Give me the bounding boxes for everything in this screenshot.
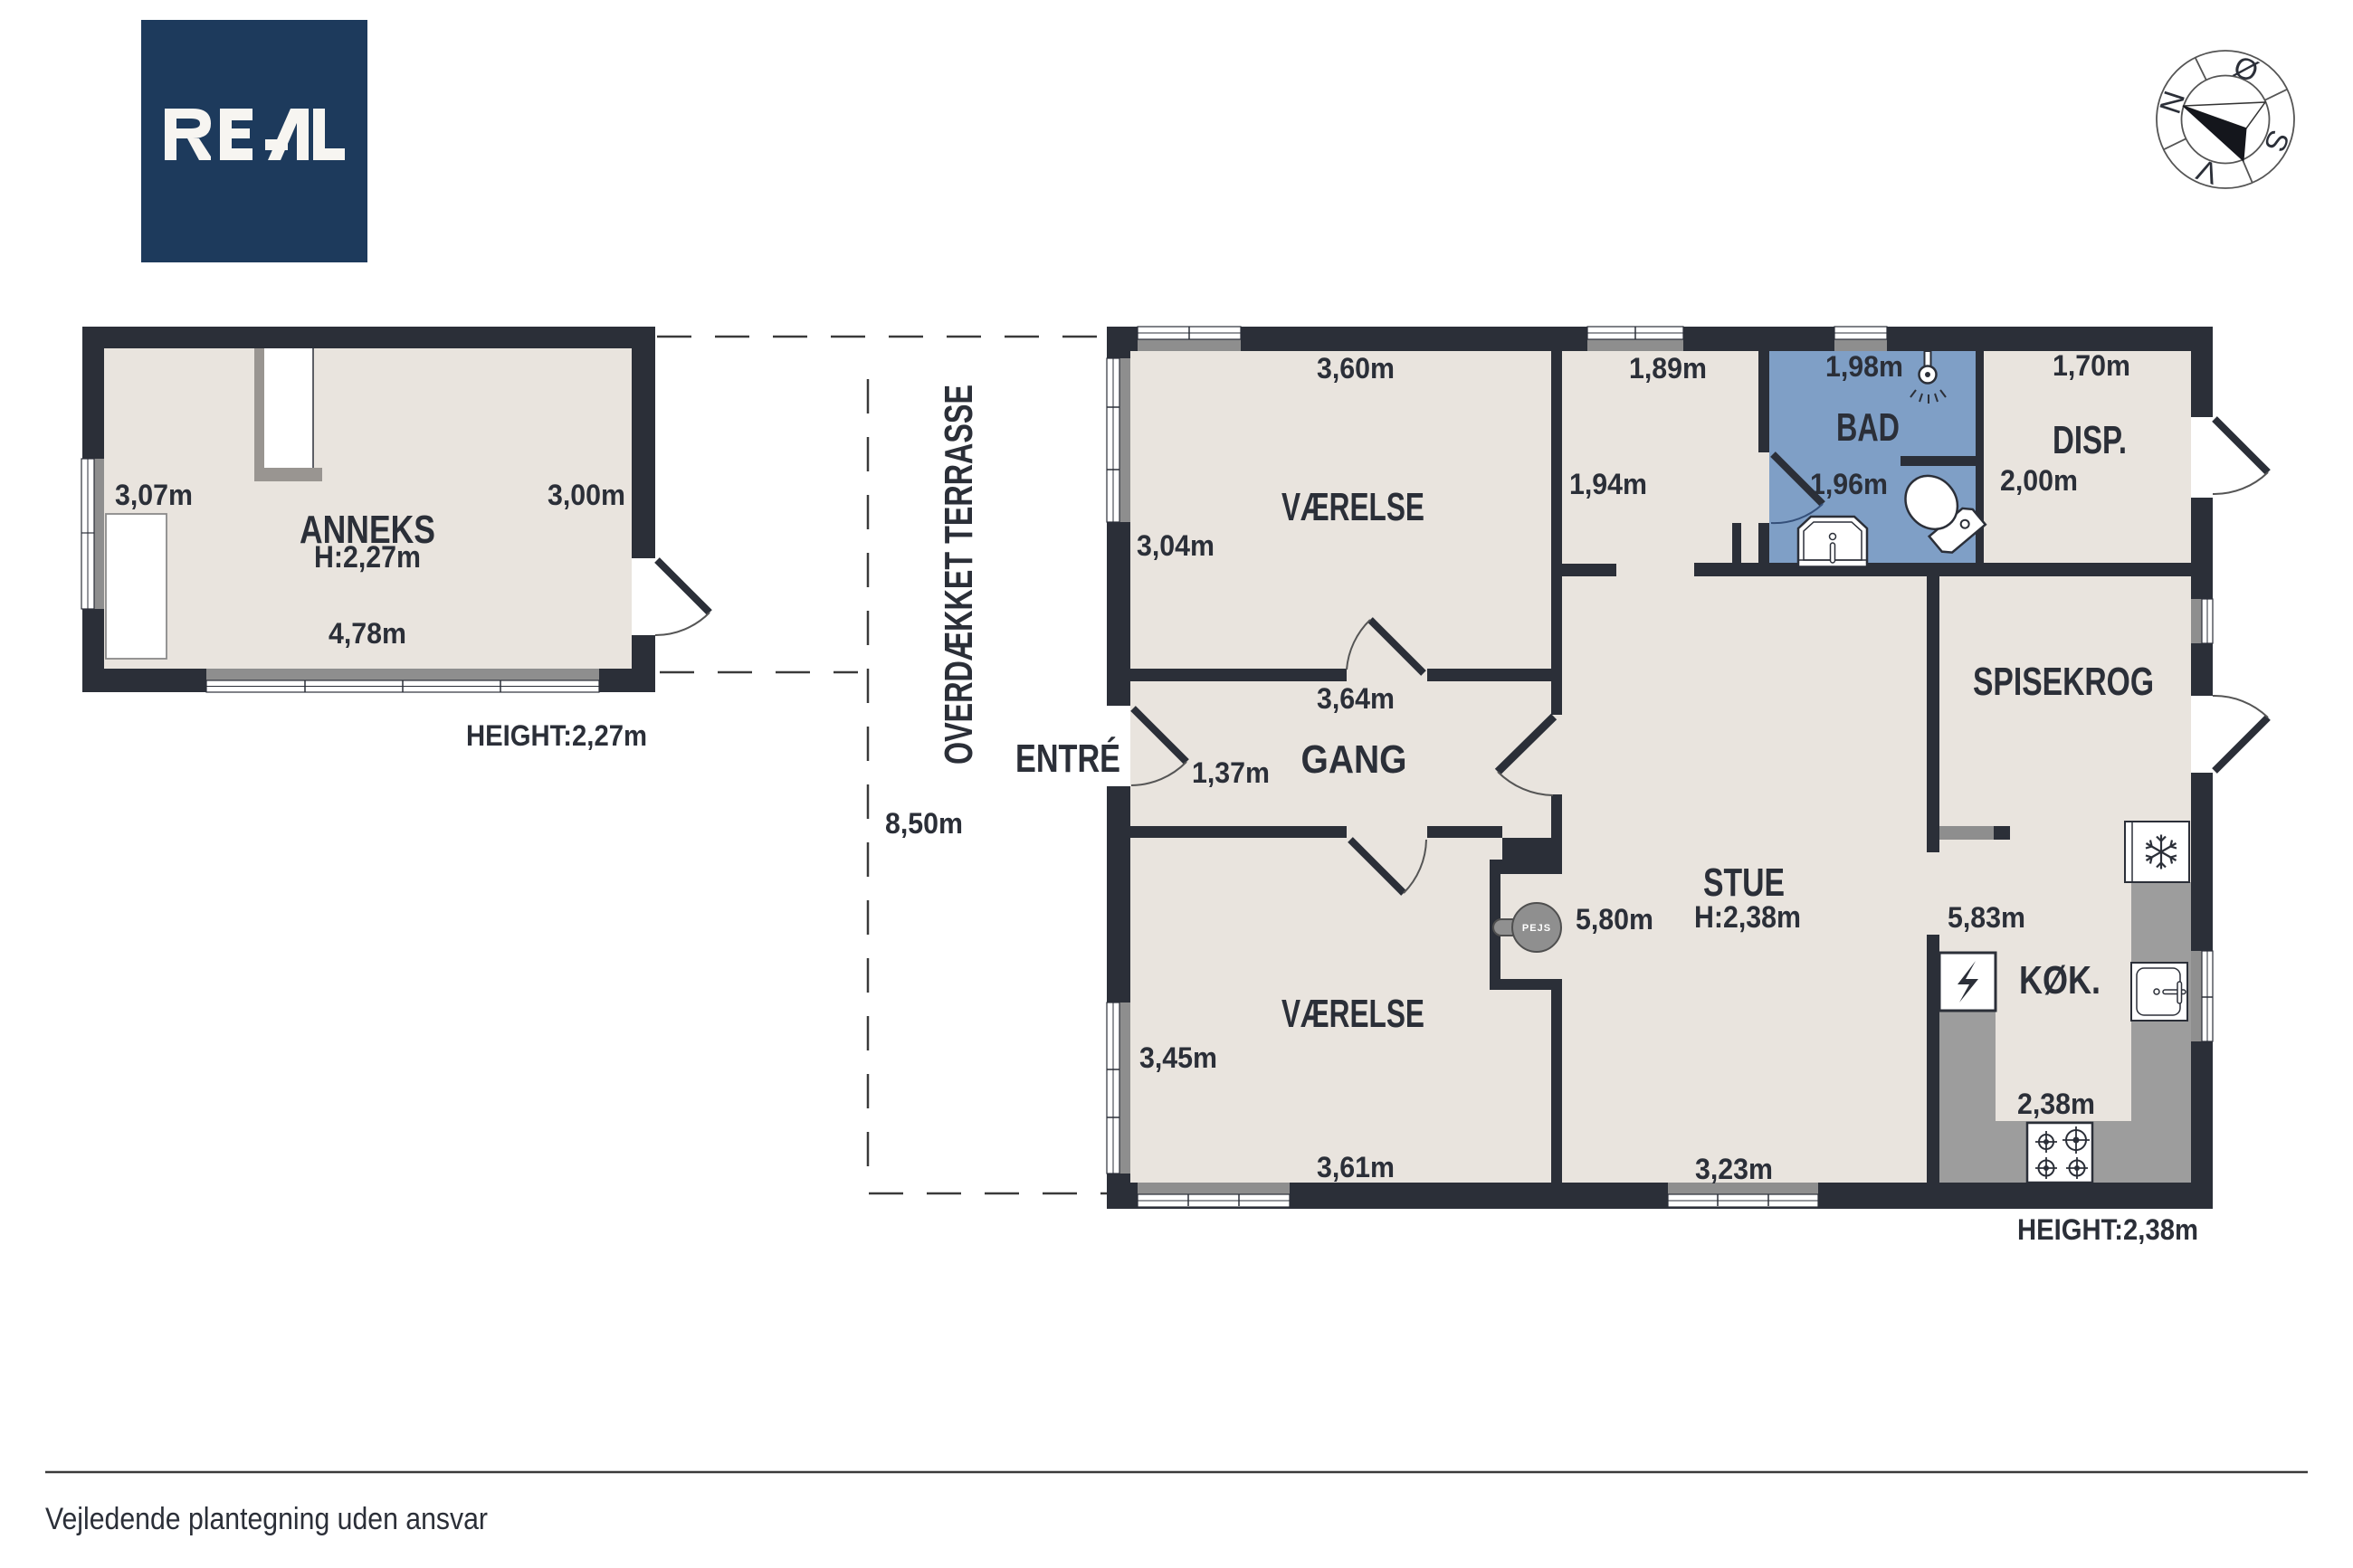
svg-text:5,83m: 5,83m [1948, 901, 2025, 934]
svg-text:STUE: STUE [1703, 860, 1785, 905]
svg-text:1,37m: 1,37m [1192, 756, 1270, 789]
svg-text:BAD: BAD [1836, 405, 1900, 450]
svg-text:3,60m: 3,60m [1317, 352, 1395, 385]
svg-text:1,94m: 1,94m [1569, 468, 1647, 500]
svg-text:Vejledende plantegning uden an: Vejledende plantegning uden ansvar [45, 1502, 488, 1536]
svg-text:H:2,27m: H:2,27m [314, 540, 421, 575]
svg-text:4,78m: 4,78m [329, 617, 406, 650]
svg-text:HEIGHT:2,38m: HEIGHT:2,38m [2017, 1213, 2198, 1246]
svg-text:5,80m: 5,80m [1576, 903, 1653, 936]
svg-text:3,61m: 3,61m [1317, 1151, 1395, 1183]
svg-text:1,89m: 1,89m [1629, 352, 1707, 385]
svg-text:1,98m: 1,98m [1825, 350, 1903, 383]
svg-text:1,96m: 1,96m [1810, 468, 1888, 500]
svg-text:VÆRELSE: VÆRELSE [1281, 485, 1424, 529]
svg-text:DISP.: DISP. [2053, 418, 2127, 462]
svg-text:2,00m: 2,00m [2000, 464, 2078, 497]
svg-text:3,04m: 3,04m [1137, 529, 1215, 562]
svg-text:3,45m: 3,45m [1139, 1041, 1217, 1074]
svg-text:2,38m: 2,38m [2017, 1088, 2095, 1120]
svg-text:1,70m: 1,70m [2053, 349, 2130, 382]
svg-text:8,50m: 8,50m [885, 807, 963, 840]
svg-text:ENTRÉ: ENTRÉ [1015, 736, 1120, 781]
svg-text:GANG: GANG [1301, 737, 1407, 782]
svg-text:HEIGHT:2,27m: HEIGHT:2,27m [466, 719, 647, 752]
svg-text:3,23m: 3,23m [1695, 1153, 1773, 1185]
svg-text:OVERDÆKKET TERRASSE: OVERDÆKKET TERRASSE [937, 385, 981, 765]
svg-text:3,07m: 3,07m [115, 479, 193, 511]
svg-text:KØK.: KØK. [2019, 958, 2101, 1003]
svg-text:PEJS: PEJS [1522, 923, 1551, 934]
svg-text:VÆRELSE: VÆRELSE [1281, 992, 1424, 1036]
svg-text:3,00m: 3,00m [548, 479, 625, 511]
svg-text:3,64m: 3,64m [1317, 682, 1395, 715]
svg-text:H:2,38m: H:2,38m [1694, 900, 1801, 935]
svg-text:SPISEKROG: SPISEKROG [1973, 660, 2154, 704]
